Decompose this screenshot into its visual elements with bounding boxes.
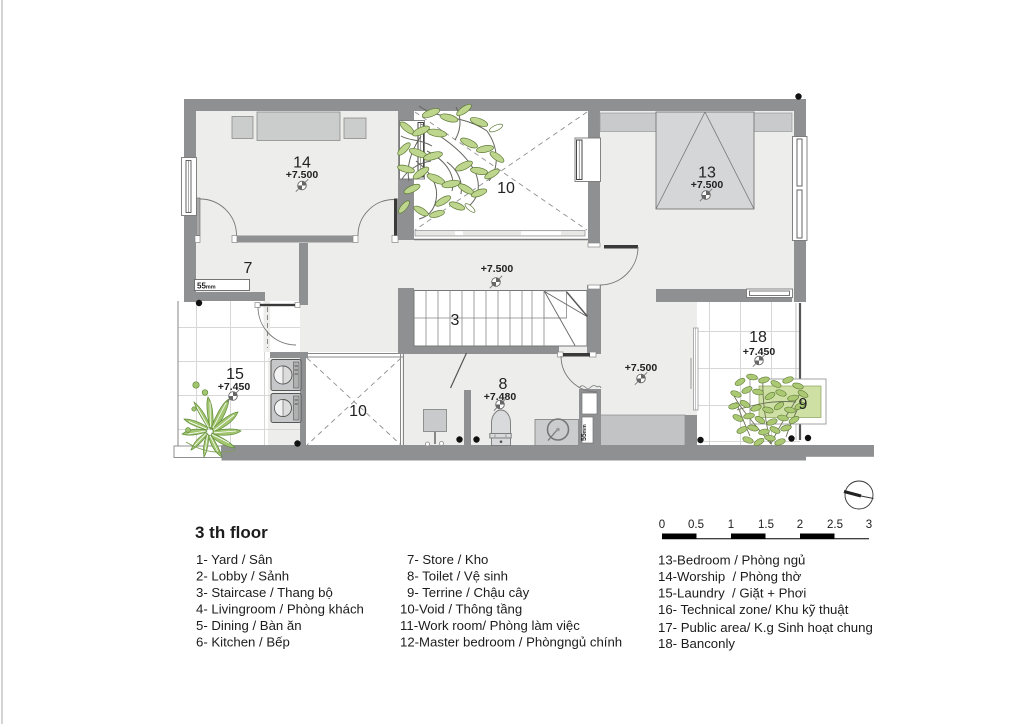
svg-text:10: 10 <box>349 403 367 420</box>
svg-text:2- Lobby / Sảnh: 2- Lobby / Sảnh <box>196 569 289 584</box>
svg-text:3: 3 <box>451 312 460 329</box>
svg-text:0: 0 <box>659 519 665 531</box>
svg-text:7: 7 <box>244 260 253 277</box>
svg-text:10-Void / Thông tầng: 10-Void / Thông tầng <box>400 602 522 617</box>
svg-text:+7.500: +7.500 <box>625 362 658 374</box>
svg-text:18: 18 <box>749 329 767 346</box>
svg-text:13-Bedroom / Phòng ngủ: 13-Bedroom / Phòng ngủ <box>658 553 805 568</box>
svg-text:9- Terrine / Chậu cây: 9- Terrine / Chậu cây <box>407 585 530 600</box>
svg-text:15-Laundry / Giặt + Phơi: 15-Laundry / Giặt + Phơi <box>658 586 806 601</box>
svg-text:1.5: 1.5 <box>758 519 774 531</box>
svg-text:10: 10 <box>497 180 515 197</box>
svg-text:+7.500: +7.500 <box>691 179 724 191</box>
svg-text:+7.500: +7.500 <box>481 263 514 275</box>
svg-text:12-Master bedroom / Phòngngủ c: 12-Master bedroom / Phòngngủ chính <box>400 635 622 650</box>
svg-text:17- Public area/ K.g Sinh hoạt: 17- Public area/ K.g Sinh hoạt chung <box>658 620 873 635</box>
svg-text:11-Work room/ Phòng làm việc: 11-Work room/ Phòng làm việc <box>400 618 580 633</box>
svg-text:4- Livingroom / Phòng khách: 4- Livingroom / Phòng khách <box>196 602 364 617</box>
svg-text:9: 9 <box>799 396 808 413</box>
svg-text:3: 3 <box>866 519 872 531</box>
svg-text:18- Banconly: 18- Banconly <box>658 636 735 651</box>
svg-text:55mm: 55mm <box>581 424 588 441</box>
svg-text:2.5: 2.5 <box>827 519 843 531</box>
svg-text:14-Worship / Phòng thờ: 14-Worship / Phòng thờ <box>658 569 802 584</box>
svg-text:3- Staircase / Thang bộ: 3- Staircase / Thang bộ <box>196 585 333 600</box>
svg-text:16- Technical zone/ Khu kỹ thu: 16- Technical zone/ Khu kỹ thuật <box>658 602 849 617</box>
svg-text:1- Yard / Sân: 1- Yard / Sân <box>196 552 272 567</box>
svg-text:0.5: 0.5 <box>688 519 704 531</box>
svg-text:7- Store / Kho: 7- Store / Kho <box>407 552 488 567</box>
svg-text:2: 2 <box>797 519 803 531</box>
svg-text:+7.450: +7.450 <box>218 381 251 393</box>
svg-text:6- Kitchen / Bếp: 6- Kitchen / Bếp <box>196 635 290 650</box>
svg-text:+7.500: +7.500 <box>286 169 319 181</box>
svg-text:5- Dining / Bàn ăn: 5- Dining / Bàn ăn <box>196 618 302 633</box>
svg-text:8- Toilet / Vệ sinh: 8- Toilet / Vệ sinh <box>407 569 508 584</box>
svg-text:3 th floor: 3 th floor <box>195 523 268 542</box>
svg-text:1: 1 <box>728 519 734 531</box>
